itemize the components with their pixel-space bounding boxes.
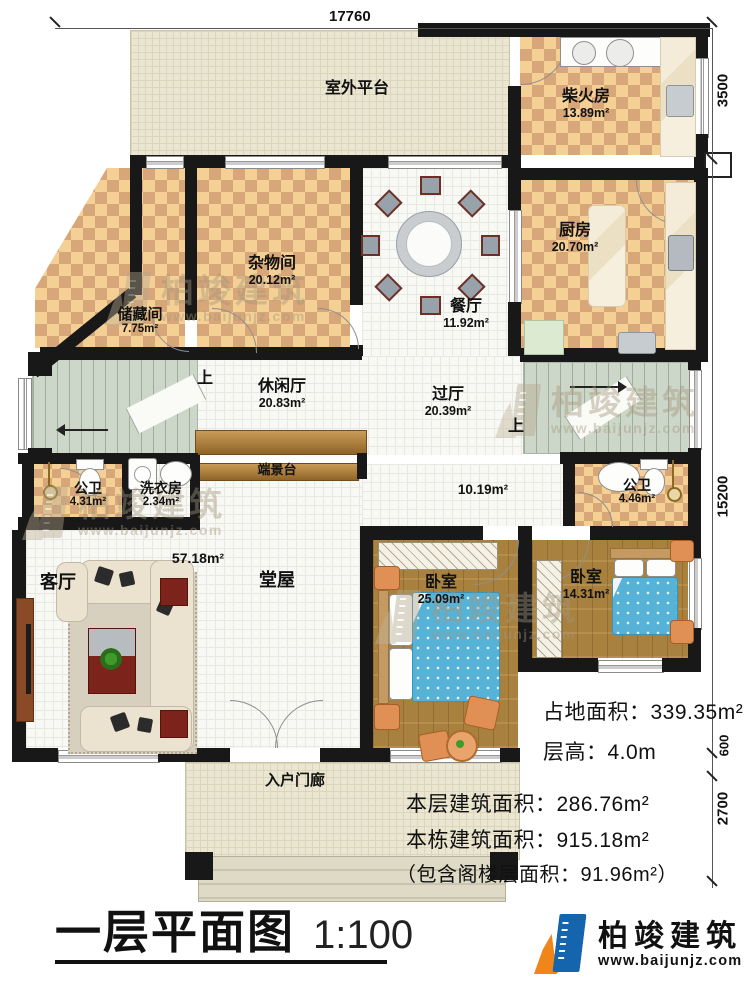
wall (520, 658, 598, 672)
bed (612, 577, 678, 635)
dimension-tick (49, 16, 60, 27)
wall (590, 526, 700, 540)
window (225, 156, 325, 169)
room-label-sundry: 杂物间20.12m² (248, 255, 296, 288)
wall (185, 155, 197, 320)
stat-this-floor-area: 本层建筑面积：286.76m² (406, 788, 649, 818)
sink (666, 85, 694, 117)
dining-chair (361, 235, 380, 256)
nightstand (670, 620, 694, 644)
dining-chair (481, 235, 500, 256)
dimension-right-3500: 3500 (715, 68, 732, 114)
dining-table-top (406, 221, 452, 267)
room-label-kitchen: 厨房20.70m² (552, 222, 599, 255)
nightstand (670, 540, 694, 562)
stairs-right-arrow (570, 386, 620, 388)
wall (560, 452, 700, 464)
dimension-right-15200: 15200 (715, 470, 732, 524)
pendant-cord (672, 460, 674, 488)
wardrobe (536, 560, 562, 658)
window-passthrough (509, 210, 522, 304)
room-label-bedroom-1: 卧室25.09m² (418, 574, 465, 607)
room-label-porch: 入户门廊 (265, 772, 325, 789)
room-label-bedroom-2: 卧室14.31m² (563, 569, 610, 602)
plant (100, 648, 122, 670)
pendant-lamp (667, 487, 682, 502)
label-console: 端景台 (257, 463, 296, 478)
floor-outdoor-platform (130, 30, 510, 158)
stove-pot (606, 39, 634, 67)
wall (500, 748, 520, 762)
dimension-line-top (55, 28, 712, 29)
side-table (160, 710, 188, 738)
wall (130, 155, 142, 295)
wall (563, 455, 575, 526)
room-label-hall: 过厅20.39m² (425, 386, 472, 419)
room-label-laundry: 洗衣房2.34m² (140, 480, 182, 509)
tv (26, 624, 31, 694)
window (18, 378, 32, 450)
wall (518, 526, 532, 672)
stairs-left-arrow-head (50, 424, 65, 436)
room-label-storage: 储藏间7.75m² (117, 306, 162, 336)
wall (360, 526, 373, 762)
wall (18, 517, 200, 530)
pillow (389, 594, 413, 646)
armchair (463, 695, 501, 731)
console-table-upper (195, 430, 367, 455)
dining-chair (420, 296, 441, 315)
side-table (160, 578, 188, 606)
stat-floor-height: 层高：4.0m (543, 736, 656, 766)
window (695, 58, 709, 138)
area-label-tangwu: 57.18m² (172, 550, 224, 566)
bed-headboard (378, 590, 389, 704)
wall (320, 748, 362, 762)
window (598, 660, 664, 673)
dimension-top: 17760 (326, 8, 374, 25)
wall (357, 453, 367, 479)
room-label-wc-right: 公卫4.46m² (619, 477, 655, 506)
logo-building-icon (534, 914, 586, 974)
drawing-title-text: 一层平面图 (55, 896, 295, 962)
window (388, 156, 502, 169)
floor-tangwu-upper (197, 478, 362, 532)
room-label-wc-left: 公卫4.31m² (70, 480, 106, 509)
wall (12, 748, 58, 762)
logo-name: 柏竣建筑 (598, 920, 742, 953)
nightstand (374, 704, 400, 730)
wall (520, 168, 708, 180)
stairs-up-label-left: 上 (197, 370, 213, 388)
wall (28, 352, 52, 376)
wall (418, 23, 710, 37)
wall (350, 155, 363, 305)
gas-stove (668, 235, 694, 271)
wall (508, 86, 521, 210)
pillow (614, 559, 644, 577)
nightstand (374, 566, 400, 590)
logo-url: www.baijunjz.com (598, 953, 742, 969)
stat-land-area: 占地面积：339.35m² (543, 696, 743, 726)
wall (40, 347, 362, 360)
drawing-title: 一层平面图 1:100 (55, 896, 413, 962)
stairs-right-arrow-head (618, 381, 633, 393)
sofa-pillow (137, 717, 153, 733)
kitchen-sink (618, 332, 656, 354)
pendant-cord (48, 462, 50, 486)
room-label-firewood: 柴火房13.89m² (562, 88, 610, 121)
porch-column (185, 852, 213, 880)
floor-plan: 柏竣建筑www.baijunjz.com 柏竣建筑www.baijunjz.co… (0, 0, 750, 987)
dining-chair (420, 176, 441, 195)
door-arc-sundry-dining (318, 308, 359, 349)
tv-cabinet (16, 598, 34, 722)
room-label-platform: 室外平台 (325, 80, 389, 98)
room-label-leisure: 休闲厅20.83m² (258, 378, 306, 411)
area-label-corridor: 10.19m² (458, 482, 508, 498)
plant (456, 740, 464, 748)
dimension-right-2700: 2700 (715, 786, 732, 832)
kitchen-island (588, 205, 626, 307)
stove-pot (572, 41, 596, 65)
drawing-scale: 1:100 (313, 913, 413, 958)
sofa-pillow (119, 571, 136, 588)
room-label-living: 客厅 (40, 572, 76, 593)
company-logo: 柏竣建筑 www.baijunjz.com (534, 914, 742, 974)
wall (360, 526, 483, 540)
room-label-dining: 餐厅11.92m² (443, 298, 489, 331)
wall (360, 748, 390, 762)
window (689, 370, 702, 450)
wall (688, 358, 701, 370)
wall (508, 23, 521, 37)
stairs-left-arrow (62, 429, 108, 431)
bed (412, 592, 500, 702)
title-underline (55, 960, 387, 964)
kitchen-cabinet (524, 320, 564, 355)
room-label-tangwu: 堂屋 (259, 570, 295, 591)
stat-attic-area: （包含阁楼层面积：91.96m²） (396, 858, 678, 887)
stat-building-area: 本栋建筑面积：915.18m² (406, 824, 649, 854)
pendant-lamp (43, 485, 58, 500)
pillow (389, 648, 413, 700)
window (146, 156, 184, 169)
stairs-up-label-right: 上 (508, 418, 524, 436)
dimension-right-600: 600 (717, 728, 732, 764)
